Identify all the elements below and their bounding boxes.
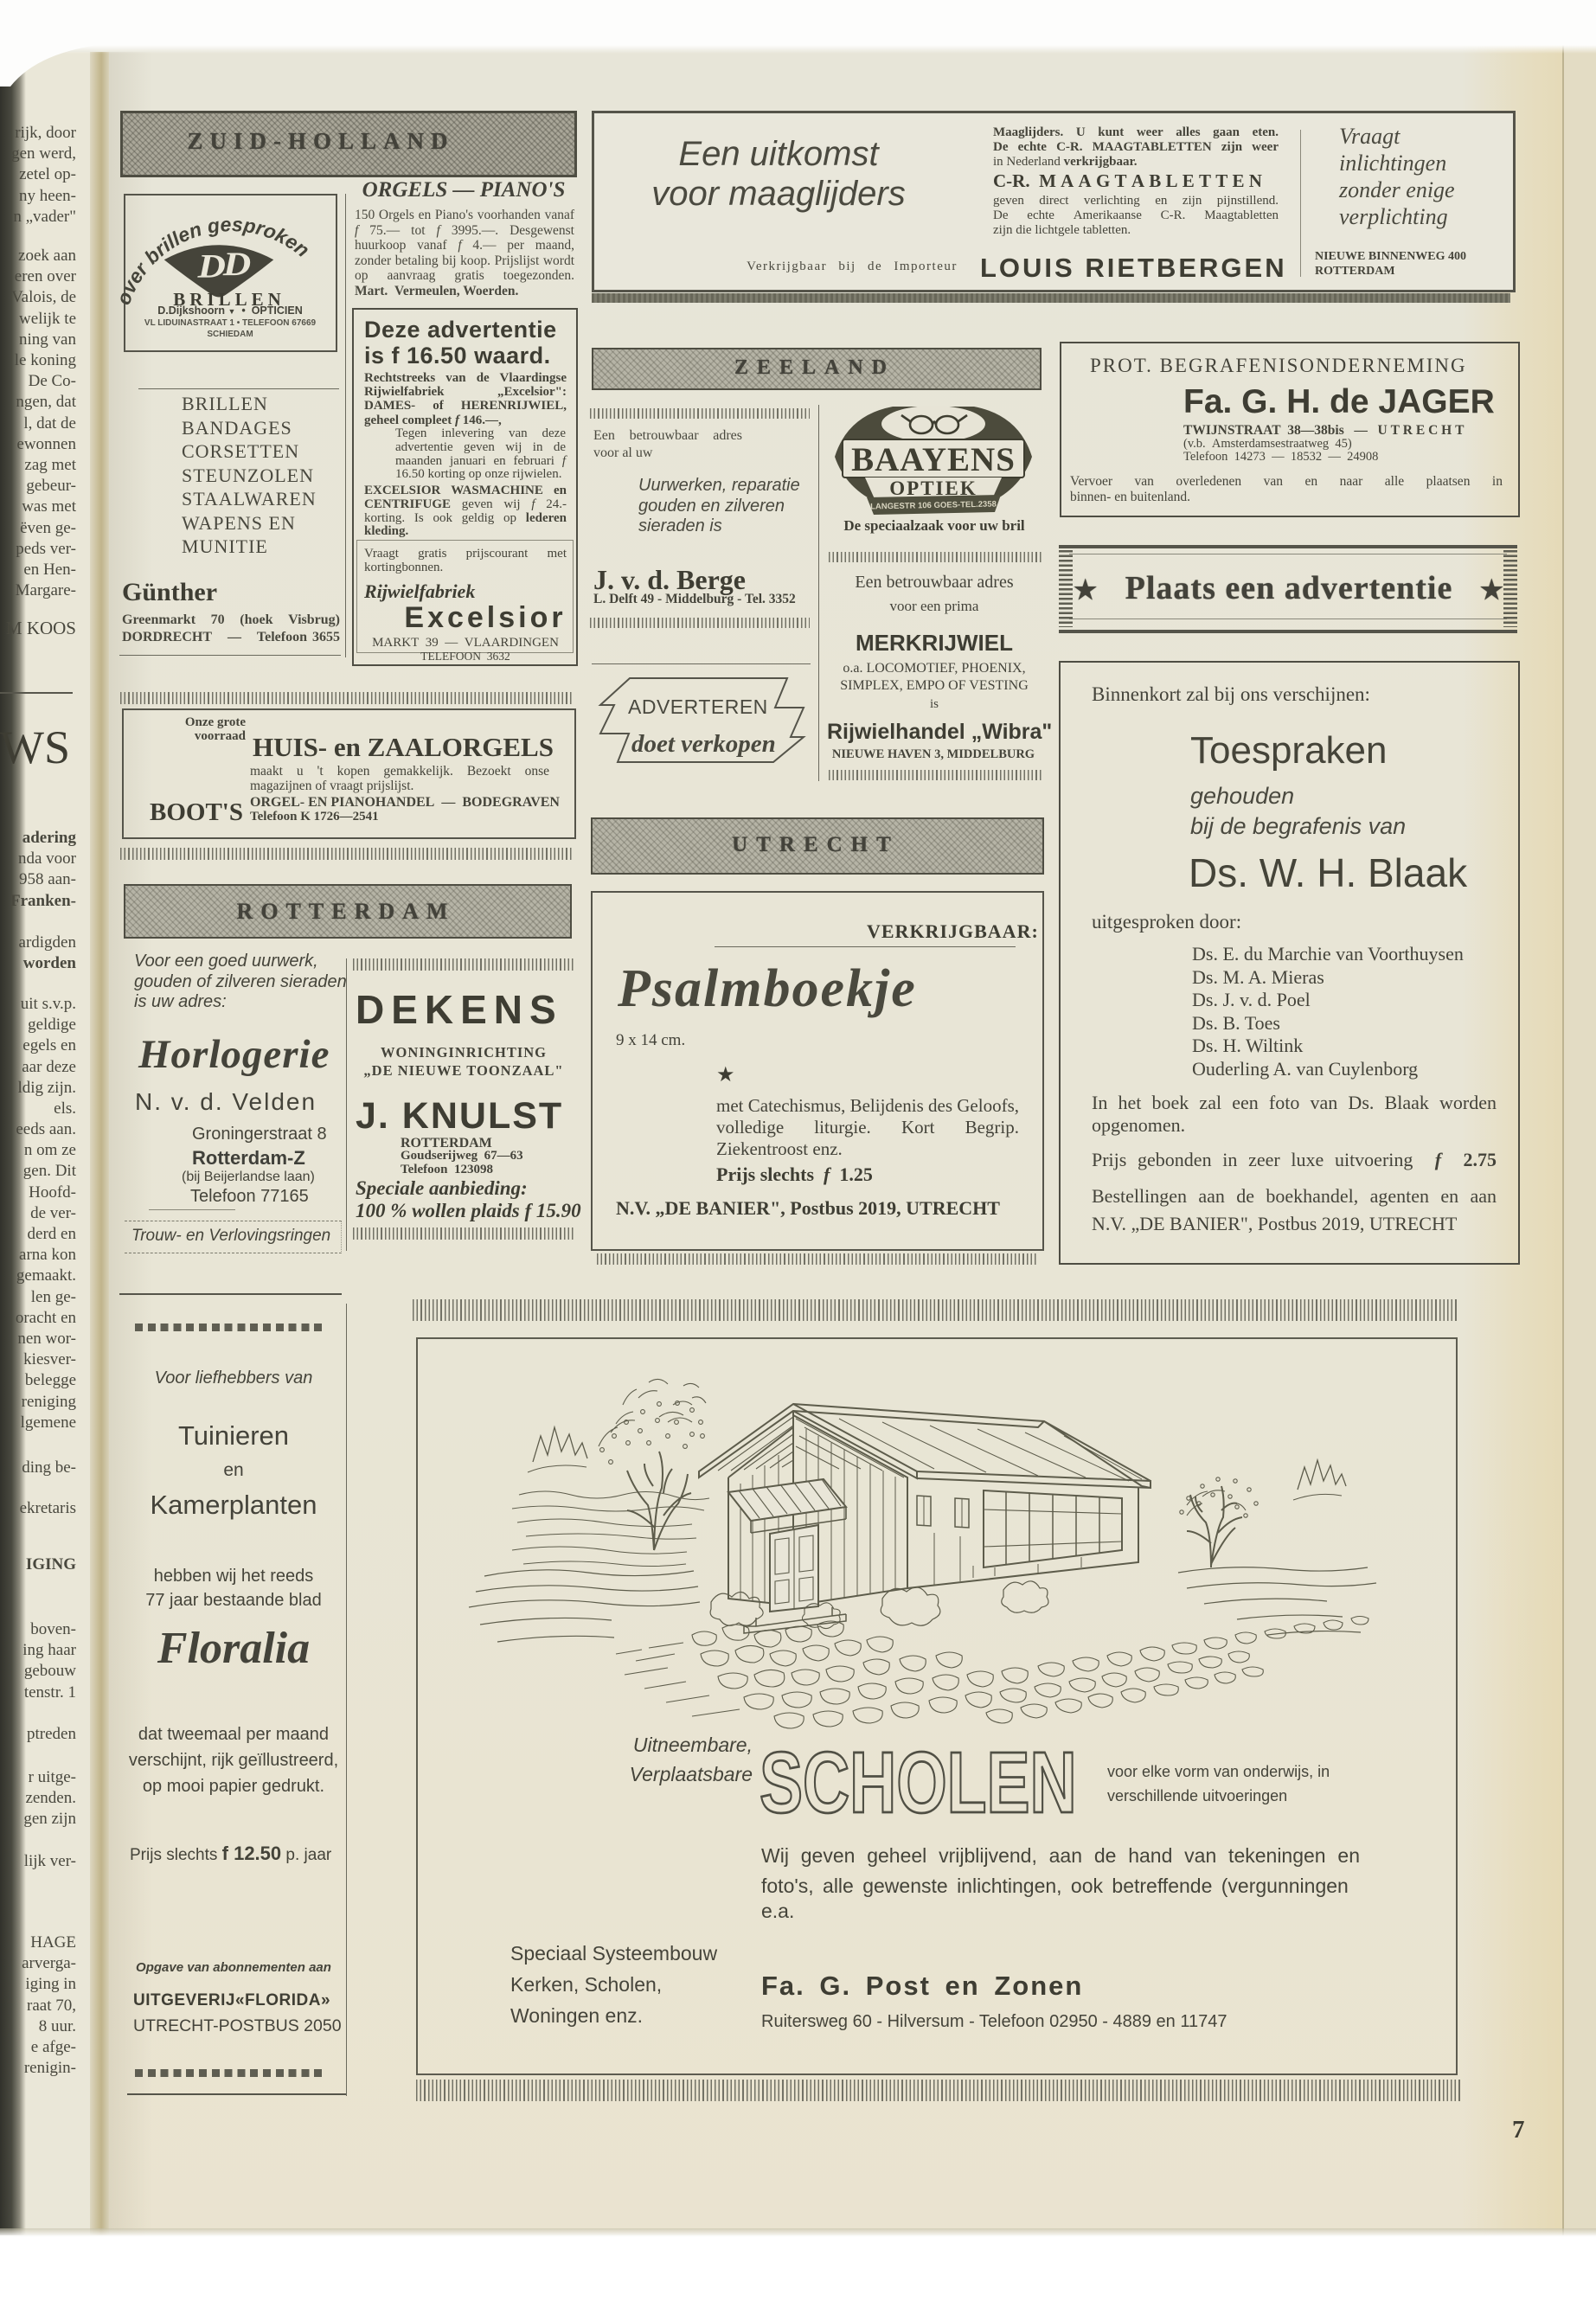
svg-text:BAAYENS: BAAYENS: [851, 441, 1016, 478]
svg-text:D: D: [222, 247, 251, 284]
svg-text:ADVERTEREN: ADVERTEREN: [628, 695, 768, 718]
svg-text:D: D: [197, 248, 226, 285]
svg-text:doet verkopen: doet verkopen: [631, 730, 776, 758]
